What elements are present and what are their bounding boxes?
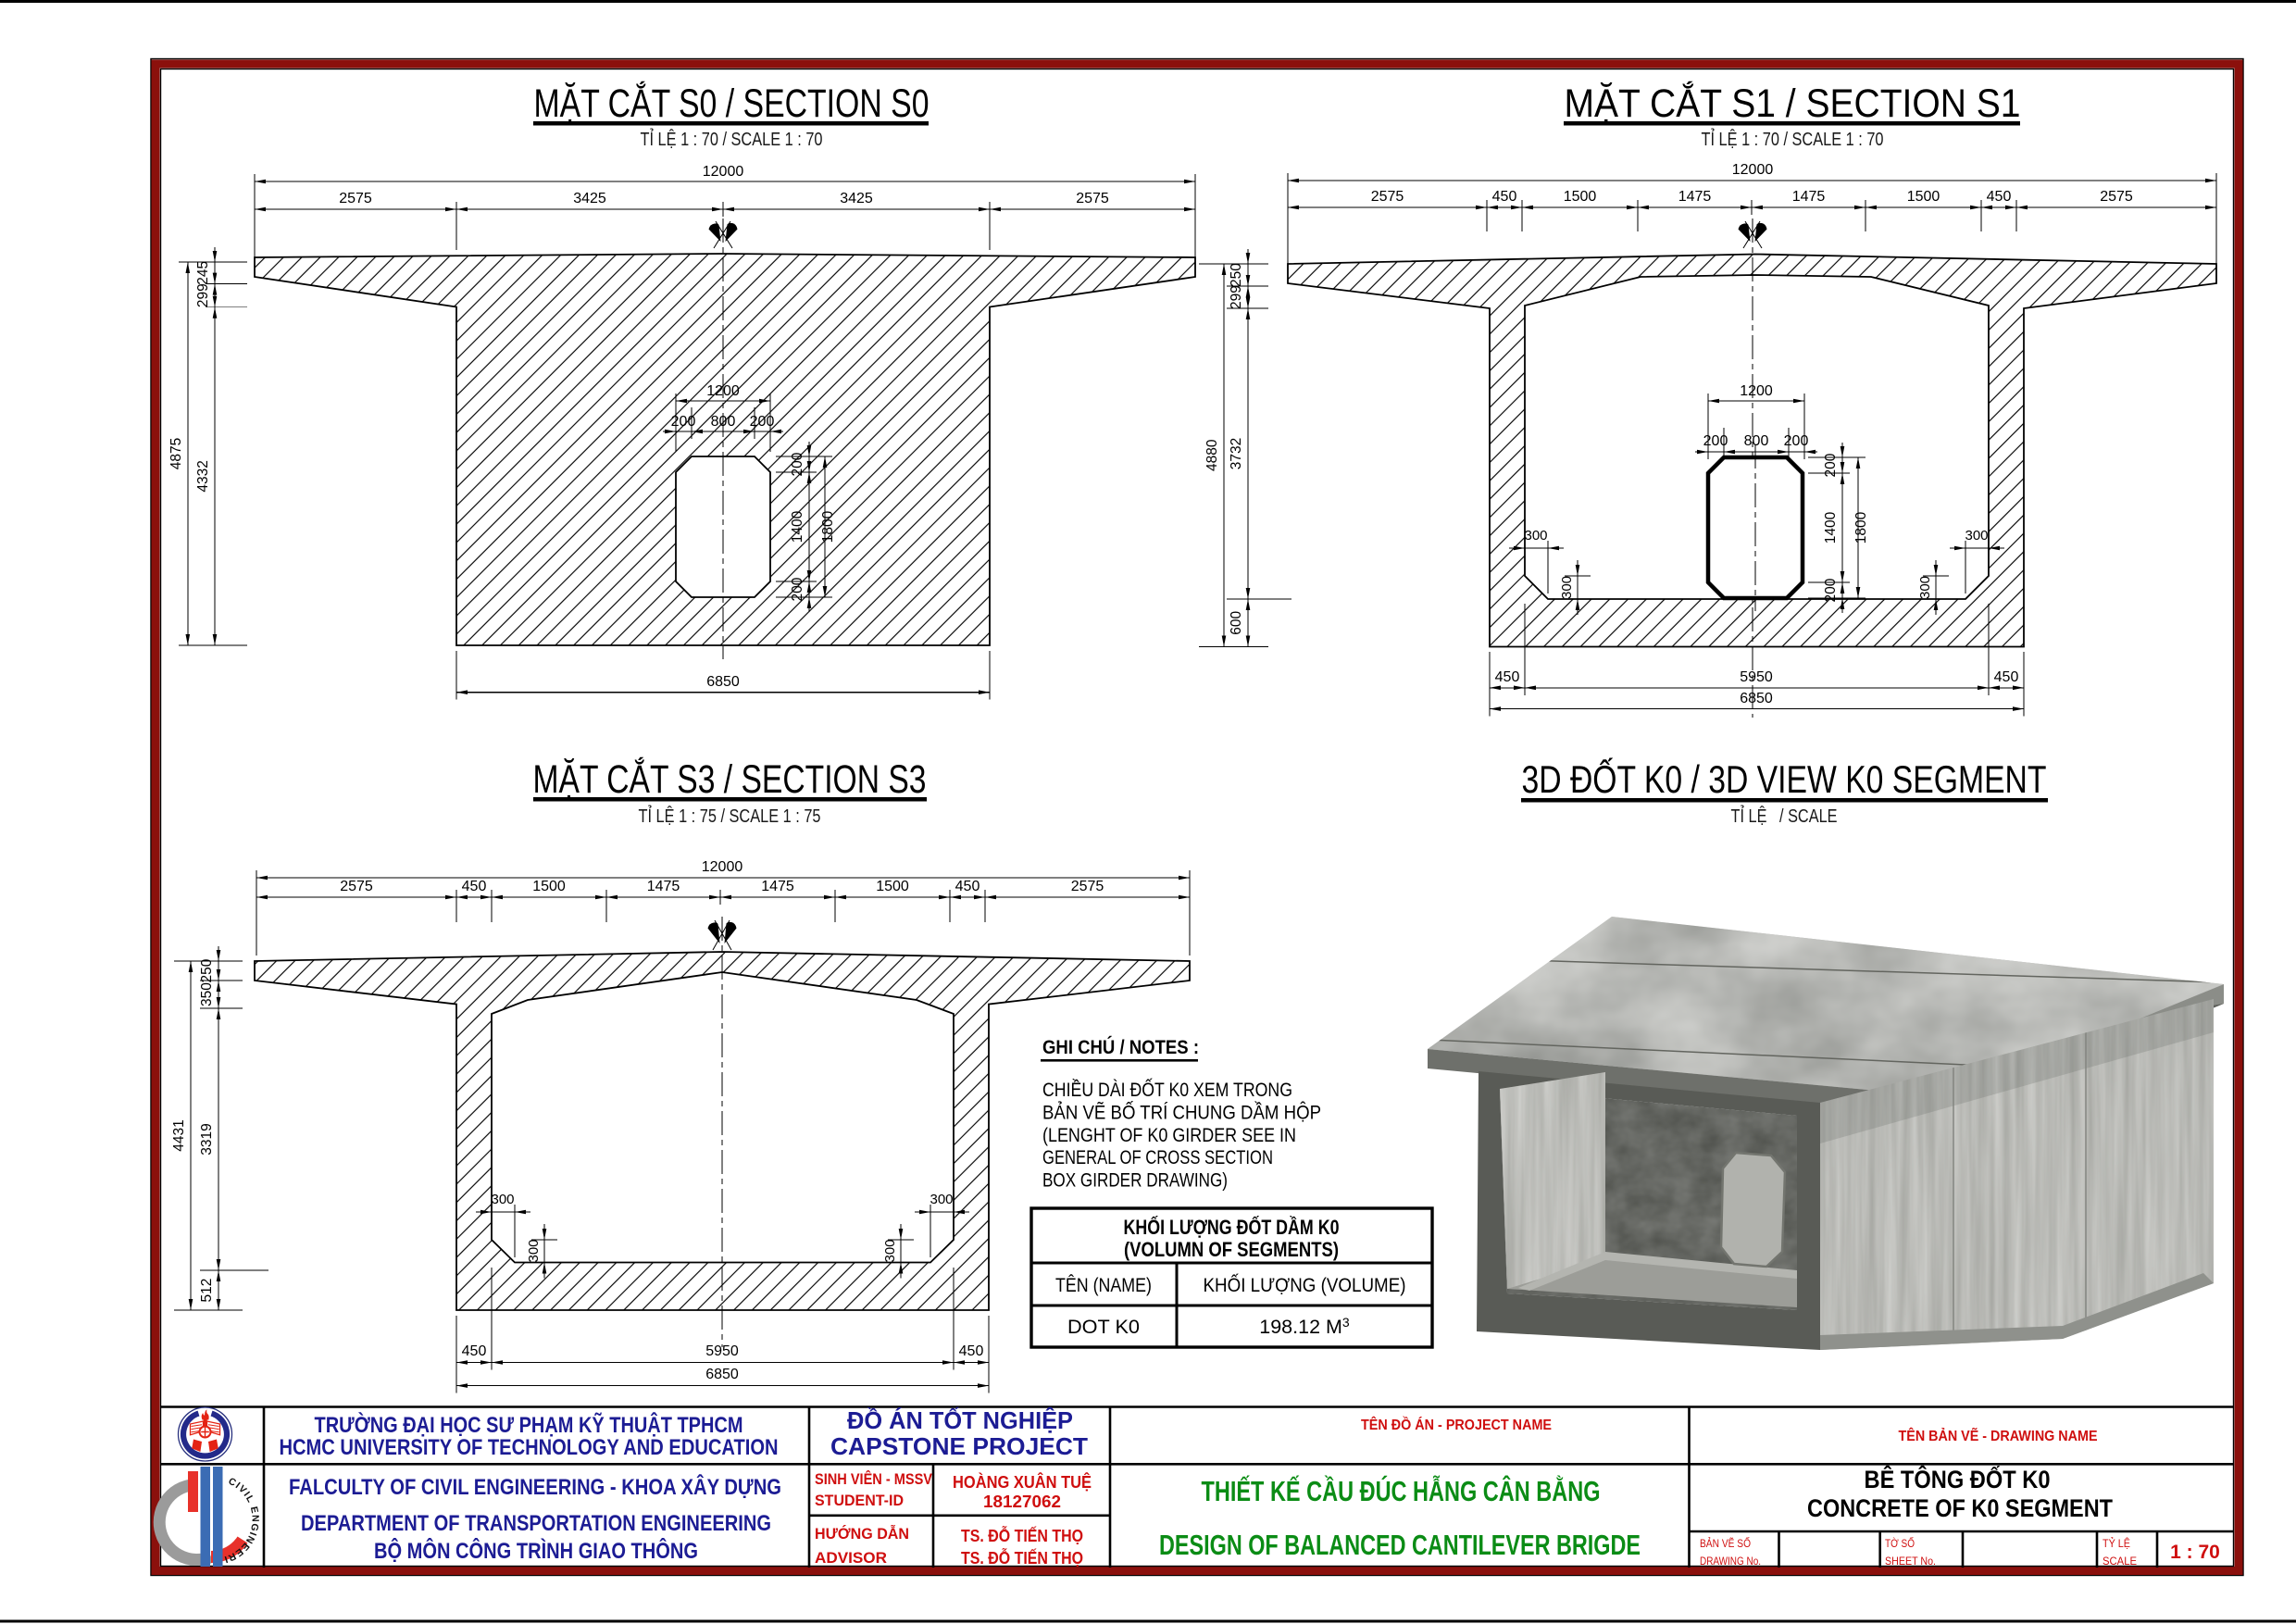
svg-text:1200: 1200 xyxy=(706,383,740,399)
svg-text:TỈ LỆ / SCALE: TỈ LỆ / SCALE xyxy=(1731,806,1838,827)
svg-text:250: 250 xyxy=(199,958,215,982)
svg-text:SHEET No.: SHEET No. xyxy=(1885,1555,1936,1568)
svg-text:450: 450 xyxy=(959,1343,984,1359)
svg-text:5950: 5950 xyxy=(1740,669,1773,685)
svg-text:300: 300 xyxy=(526,1239,542,1262)
svg-text:1200: 1200 xyxy=(1740,383,1773,399)
svg-text:1800: 1800 xyxy=(820,510,836,543)
svg-text:2575: 2575 xyxy=(2100,189,2133,205)
svg-text:800: 800 xyxy=(711,414,736,430)
svg-text:4431: 4431 xyxy=(171,1119,187,1151)
svg-text:450: 450 xyxy=(1994,669,2019,685)
svg-text:ĐỒ ÁN TỐT NGHIỆP: ĐỒ ÁN TỐT NGHIỆP xyxy=(847,1406,1073,1434)
svg-text:200: 200 xyxy=(790,577,805,601)
svg-text:STUDENT-ID: STUDENT-ID xyxy=(815,1492,904,1509)
svg-text:TỜ SỐ: TỜ SỐ xyxy=(1885,1536,1915,1550)
svg-text:3D ĐỐT K0 / 3D VIEW K0 SEGMENT: 3D ĐỐT K0 / 3D VIEW K0 SEGMENT xyxy=(1522,756,2047,801)
svg-text:4875: 4875 xyxy=(168,438,184,469)
svg-text:450: 450 xyxy=(1492,189,1517,205)
svg-text:DESIGN OF BALANCED CANTILEVER: DESIGN OF BALANCED CANTILEVER BRIGDE xyxy=(1159,1529,1641,1561)
svg-text:6850: 6850 xyxy=(1740,691,1773,706)
svg-text:512: 512 xyxy=(199,1279,215,1303)
svg-text:2575: 2575 xyxy=(1071,879,1104,894)
svg-text:200: 200 xyxy=(790,452,805,476)
svg-text:1475: 1475 xyxy=(761,879,794,894)
svg-text:DOT K0: DOT K0 xyxy=(1067,1316,1140,1338)
svg-text:1400: 1400 xyxy=(790,510,805,543)
svg-text:3732: 3732 xyxy=(1229,438,1244,469)
svg-text:6850: 6850 xyxy=(706,674,740,690)
svg-text:TÊN ĐỒ ÁN - PROJECT NAME: TÊN ĐỒ ÁN - PROJECT NAME xyxy=(1361,1416,1552,1433)
svg-text:6850: 6850 xyxy=(705,1367,739,1382)
svg-text:ADVISOR: ADVISOR xyxy=(815,1549,887,1567)
svg-text:4880: 4880 xyxy=(1204,439,1220,471)
svg-text:1500: 1500 xyxy=(876,879,909,894)
svg-text:HCMC UNIVERSITY OF TECHNOLOGY: HCMC UNIVERSITY OF TECHNOLOGY AND EDUCAT… xyxy=(280,1435,779,1460)
svg-text:CAPSTONE PROJECT: CAPSTONE PROJECT xyxy=(830,1432,1088,1460)
svg-text:3425: 3425 xyxy=(840,191,873,206)
svg-text:FALCULTY OF CIVIL ENGINEERING: FALCULTY OF CIVIL ENGINEERING - KHOA XÂY… xyxy=(289,1474,781,1500)
svg-text:1475: 1475 xyxy=(1792,189,1826,205)
svg-text:5950: 5950 xyxy=(705,1343,739,1359)
svg-text:SCALE: SCALE xyxy=(2103,1555,2137,1568)
svg-text:HOÀNG XUÂN TUỆ: HOÀNG XUÂN TUỆ xyxy=(953,1472,1092,1492)
svg-text:TỈ LỆ 1 : 70 / SCALE 1 : 70: TỈ LỆ 1 : 70 / SCALE 1 : 70 xyxy=(1702,129,1884,150)
svg-text:300: 300 xyxy=(1524,528,1547,543)
svg-text:CONCRETE OF K0 SEGMENT: CONCRETE OF K0 SEGMENT xyxy=(1807,1494,2113,1522)
svg-text:450: 450 xyxy=(1987,189,2012,205)
svg-text:3425: 3425 xyxy=(573,191,606,206)
svg-text:600: 600 xyxy=(1229,610,1244,634)
svg-text:BẢN VẼ BỐ TRÍ CHUNG DẦM HỘP: BẢN VẼ BỐ TRÍ CHUNG DẦM HỘP xyxy=(1042,1099,1321,1123)
svg-text:1475: 1475 xyxy=(1678,189,1712,205)
svg-text:200: 200 xyxy=(1823,453,1839,477)
svg-text:DEPARTMENT OF TRANSPORTATION E: DEPARTMENT OF TRANSPORTATION ENGINEERING xyxy=(301,1511,771,1536)
svg-text:350: 350 xyxy=(199,982,215,1006)
svg-text:CHIỀU DÀI ĐỐT K0 XEM TRONG: CHIỀU DÀI ĐỐT K0 XEM TRONG xyxy=(1042,1077,1292,1101)
svg-text:2575: 2575 xyxy=(339,191,372,206)
svg-text:299: 299 xyxy=(1229,285,1244,309)
svg-text:245: 245 xyxy=(195,261,211,285)
svg-text:BẢN VẼ SỐ: BẢN VẼ SỐ xyxy=(1700,1536,1751,1550)
svg-text:TS. ĐỖ TIẾN THỌ: TS. ĐỖ TIẾN THỌ xyxy=(961,1548,1083,1568)
svg-text:12000: 12000 xyxy=(703,164,744,180)
svg-text:450: 450 xyxy=(462,1343,487,1359)
svg-text:THIẾT KẾ CẦU ĐÚC HẪNG CÂN BẰNG: THIẾT KẾ CẦU ĐÚC HẪNG CÂN BẰNG xyxy=(1202,1474,1601,1507)
svg-text:450: 450 xyxy=(462,879,487,894)
svg-text:HƯỚNG DẪN: HƯỚNG DẪN xyxy=(815,1525,909,1543)
svg-text:2575: 2575 xyxy=(1371,189,1404,205)
svg-text:SINH VIÊN - MSSV: SINH VIÊN - MSSV xyxy=(815,1470,933,1488)
svg-text:2575: 2575 xyxy=(340,879,373,894)
svg-text:KHỐI LƯỢNG (VOLUME): KHỐI LƯỢNG (VOLUME) xyxy=(1204,1272,1406,1296)
svg-text:300: 300 xyxy=(1965,528,1988,543)
svg-text:BÊ TÔNG ĐỐT K0: BÊ TÔNG ĐỐT K0 xyxy=(1865,1464,2051,1493)
svg-text:GENERAL OF CROSS SECTION: GENERAL OF CROSS SECTION xyxy=(1042,1146,1273,1168)
svg-text:200: 200 xyxy=(1823,578,1839,602)
svg-text:GHI CHÚ / NOTES :: GHI CHÚ / NOTES : xyxy=(1042,1036,1199,1058)
svg-text:TS. ĐỖ TIẾN THỌ: TS. ĐỖ TIẾN THỌ xyxy=(961,1526,1083,1545)
svg-text:TÊN (NAME): TÊN (NAME) xyxy=(1055,1273,1152,1296)
svg-text:800: 800 xyxy=(1744,433,1769,449)
svg-text:(VOLUMN OF SEGMENTS): (VOLUMN OF SEGMENTS) xyxy=(1124,1238,1339,1261)
svg-text:450: 450 xyxy=(955,879,980,894)
svg-text:TỈ LỆ 1 : 75 / SCALE 1 : 75: TỈ LỆ 1 : 75 / SCALE 1 : 75 xyxy=(639,806,821,827)
svg-text:2575: 2575 xyxy=(1076,191,1109,206)
svg-text:DRAWING No.: DRAWING No. xyxy=(1700,1555,1761,1568)
svg-text:BOX GIRDER DRAWING): BOX GIRDER DRAWING) xyxy=(1042,1169,1228,1192)
svg-text:1500: 1500 xyxy=(1564,189,1597,205)
svg-text:MẶT CẮT S3 / SECTION S3: MẶT CẮT S3 / SECTION S3 xyxy=(533,756,927,802)
svg-text:1800: 1800 xyxy=(1853,511,1869,543)
svg-text:CIVIL ENGINEERING: CIVIL ENGINEERING xyxy=(0,0,261,1565)
svg-text:4332: 4332 xyxy=(195,460,211,492)
svg-text:TỶ LỆ: TỶ LỆ xyxy=(2103,1536,2130,1550)
svg-text:12000: 12000 xyxy=(1732,162,1774,178)
svg-text:300: 300 xyxy=(1917,576,1933,599)
svg-text:1 : 70: 1 : 70 xyxy=(2170,1542,2220,1563)
svg-text:1500: 1500 xyxy=(532,879,566,894)
svg-text:300: 300 xyxy=(1559,576,1575,599)
svg-text:(LENGHT OF K0 GIRDER SEE IN: (LENGHT OF K0 GIRDER SEE IN xyxy=(1042,1124,1296,1146)
svg-text:300: 300 xyxy=(930,1192,953,1207)
svg-text:KHỐI LƯỢNG ĐỐT DẦM K0: KHỐI LƯỢNG ĐỐT DẦM K0 xyxy=(1124,1215,1340,1239)
svg-text:300: 300 xyxy=(882,1239,898,1262)
svg-text:18127062: 18127062 xyxy=(983,1492,1061,1511)
svg-text:450: 450 xyxy=(1495,669,1520,685)
svg-text:TRƯỜNG ĐẠI HỌC SƯ PHẠM KỸ THUẬ: TRƯỜNG ĐẠI HỌC SƯ PHẠM KỸ THUẬT TPHCM xyxy=(315,1412,743,1438)
svg-text:3319: 3319 xyxy=(199,1123,215,1155)
svg-text:198.12 M3: 198.12 M3 xyxy=(1259,1315,1350,1338)
svg-text:TÊN BẢN VẼ - DRAWING NAME: TÊN BẢN VẼ - DRAWING NAME xyxy=(1899,1426,2098,1444)
svg-text:250: 250 xyxy=(1229,263,1244,287)
svg-text:BỘ MÔN CÔNG TRÌNH GIAO THÔNG: BỘ MÔN CÔNG TRÌNH GIAO THÔNG xyxy=(374,1538,698,1564)
svg-text:MẶT CẮT S1 / SECTION S1: MẶT CẮT S1 / SECTION S1 xyxy=(1565,81,2021,126)
svg-text:1500: 1500 xyxy=(1907,189,1940,205)
svg-text:1400: 1400 xyxy=(1823,511,1839,543)
svg-text:300: 300 xyxy=(491,1192,514,1207)
svg-text:299: 299 xyxy=(195,283,211,307)
svg-text:MẶT CẮT S0 / SECTION S0: MẶT CẮT S0 / SECTION S0 xyxy=(534,81,930,126)
svg-text:1475: 1475 xyxy=(647,879,680,894)
svg-text:TỈ LỆ 1 : 70 / SCALE 1 : 70: TỈ LỆ 1 : 70 / SCALE 1 : 70 xyxy=(641,129,823,150)
svg-text:12000: 12000 xyxy=(702,859,743,875)
